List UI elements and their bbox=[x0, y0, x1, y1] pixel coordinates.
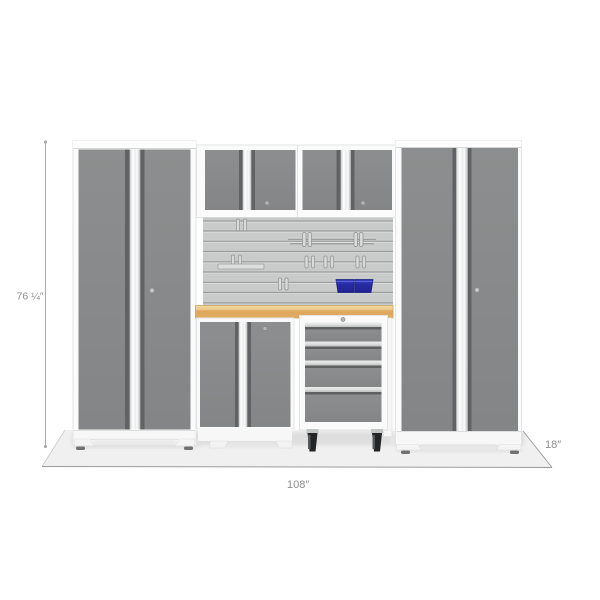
svg-text:76 ¼″: 76 ¼″ bbox=[17, 291, 44, 303]
svg-text:18″: 18″ bbox=[545, 439, 561, 451]
svg-text:108″: 108″ bbox=[287, 479, 309, 491]
